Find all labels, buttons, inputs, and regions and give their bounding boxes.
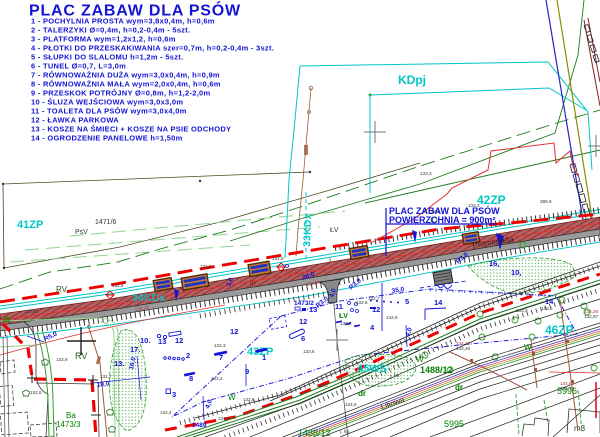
svg-text:5: 5 [405,297,409,306]
svg-text:132,46: 132,46 [456,346,470,351]
svg-text:133,0: 133,0 [516,308,528,313]
svg-text:132,97: 132,97 [584,314,598,319]
svg-text:42ZP: 42ZP [477,193,506,207]
svg-text:6: 6 [301,334,305,343]
svg-text:12 - ŁAWKA PARKOWA: 12 - ŁAWKA PARKOWA [31,115,119,124]
svg-text:ŁV: ŁV [330,227,339,234]
svg-text:133,3: 133,3 [428,209,440,214]
svg-text:132,5: 132,5 [243,397,255,402]
svg-text:Ba: Ba [66,411,76,420]
svg-text:11: 11 [335,302,343,311]
svg-text:POWIERZCHNIA = 900m²: POWIERZCHNIA = 900m² [389,215,495,225]
svg-text:132,9: 132,9 [56,357,68,362]
svg-text:8 - RÓWNOWAŻNIA MAŁA wym=2,0x0: 8 - RÓWNOWAŻNIA MAŁA wym=2,0x0,4m, h=0,6… [31,79,221,88]
svg-text:W: W [228,393,236,402]
svg-text:1 - POCHYLNIA PROSTA wym=3,8x0: 1 - POCHYLNIA PROSTA wym=3,8x0,4m, h=0,6… [31,16,215,25]
svg-text:1471/6: 1471/6 [95,219,117,226]
svg-text:1: 1 [262,353,266,362]
svg-text:PsV: PsV [75,229,88,236]
svg-text:132,9: 132,9 [386,315,398,320]
svg-text:46ZP: 46ZP [545,323,574,337]
svg-text:2 - TALERZYKI Ø=0,4m, h=0,2-0,: 2 - TALERZYKI Ø=0,4m, h=0,2-0,4m - 5szt. [31,25,190,34]
svg-text:132,4: 132,4 [160,410,172,415]
svg-text:1489: 1489 [192,422,207,429]
svg-text:RV: RV [56,285,68,294]
svg-text:132,6: 132,6 [30,390,42,395]
svg-text:14 - OGRODZENIE PANELOWE h=1,5: 14 - OGRODZENIE PANELOWE h=1,50m [31,133,183,142]
svg-text:j. kp.: j. kp. [389,373,401,379]
svg-text:1488/12: 1488/12 [420,365,453,375]
svg-text:132,7: 132,7 [368,296,380,301]
svg-text:45WS: 45WS [357,363,387,375]
svg-text:7 - RÓWNOWAŻNIA DUŻA wym=3,0x0: 7 - RÓWNOWAŻNIA DUŻA wym=3,0x0,4m, h=0,9… [31,70,220,79]
svg-text:388,9: 388,9 [540,199,552,204]
svg-text:132,8: 132,8 [200,264,212,269]
svg-text:1473/3: 1473/3 [56,420,81,429]
svg-text:132,9: 132,9 [272,256,284,261]
svg-text:12: 12 [175,336,183,345]
svg-text:134,6: 134,6 [345,402,357,407]
svg-text:m3: m3 [574,424,586,433]
svg-text:dr: dr [358,389,366,398]
svg-text:133,3: 133,3 [468,203,480,208]
svg-text:12: 12 [230,327,238,336]
svg-text:dr: dr [3,315,11,324]
svg-text:13.: 13. [114,359,124,368]
svg-text:17.: 17. [130,345,140,354]
svg-text:133,3: 133,3 [420,171,432,176]
svg-text:41ZP: 41ZP [17,219,43,231]
svg-text:5 - SŁUPKI DO SLALOMU h=1,2m -: 5 - SŁUPKI DO SLALOMU h=1,2m - 5szt. [31,52,183,61]
svg-text:132,6: 132,6 [303,349,315,354]
svg-text:3 - PLATFORMA wym=1,2x1,2, h=0: 3 - PLATFORMA wym=1,2x1,2, h=0,6m [31,34,176,43]
svg-text:12: 12 [372,305,380,314]
svg-text:132,0: 132,0 [316,383,328,388]
svg-text:4 - PŁOTKI DO PRZESKAKIWANIA s: 4 - PŁOTKI DO PRZESKAKIWANIA szer=0,7m, … [31,43,274,52]
svg-text:ŁV: ŁV [339,313,348,320]
svg-text:14: 14 [545,297,554,306]
svg-text:6 - TUNEL Ø=0,7, L=3,0m: 6 - TUNEL Ø=0,7, L=3,0m [31,61,126,70]
svg-text:13 - KOSZE NA ŚMIECI + KOSZE N: 13 - KOSZE NA ŚMIECI + KOSZE NA PSIE ODC… [31,124,231,133]
svg-text:12: 12 [299,317,307,326]
svg-text:11 - TOALETA DLA PSÓW wym=3,0x: 11 - TOALETA DLA PSÓW wym=3,0x4,0m [31,106,187,115]
svg-text:3: 3 [172,390,176,399]
svg-text:133,5: 133,5 [541,306,553,311]
svg-text:10.: 10. [140,336,150,345]
svg-text:j. kp.: j. kp. [339,429,351,435]
svg-text:132,3: 132,3 [214,343,226,348]
svg-text:132,7: 132,7 [340,321,352,326]
svg-text:133,54: 133,54 [24,309,38,314]
svg-text:132,7: 132,7 [100,374,112,379]
svg-text:1488/12: 1488/12 [298,428,331,437]
svg-text:W: W [416,355,424,364]
svg-text:33KDx: 33KDx [302,213,314,247]
svg-text:16,: 16, [489,259,499,268]
svg-text:10,: 10, [511,268,521,277]
svg-text:134,5: 134,5 [218,416,230,421]
svg-text:KDpj: KDpj [398,73,426,87]
svg-text:2: 2 [186,351,190,360]
svg-text:132,4: 132,4 [211,376,223,381]
svg-text:W: W [524,343,532,352]
svg-text:9 - PRZESKOK POTRÓJNY Ø=0,8m,: 9 - PRZESKOK POTRÓJNY Ø=0,8m, h=1,2-2,0m [31,88,211,97]
svg-text:132,6: 132,6 [356,300,368,305]
svg-text:10 - ŚLUZA WEJŚCIOWA wym=3,0x3: 10 - ŚLUZA WEJŚCIOWA wym=3,0x3,0m [31,97,183,106]
svg-text:5995: 5995 [444,419,464,429]
svg-text:dr: dr [455,383,463,392]
svg-text:14: 14 [434,298,443,307]
svg-text:132,9: 132,9 [112,283,124,288]
